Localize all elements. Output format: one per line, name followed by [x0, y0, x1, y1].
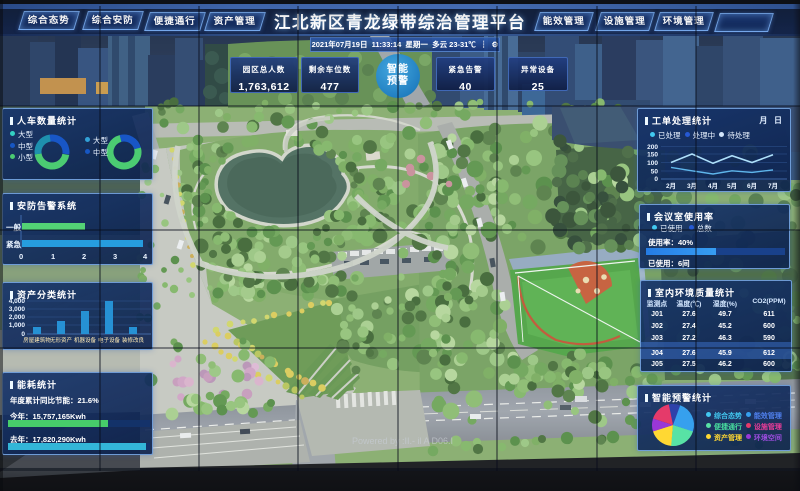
- svg-text:电子设备: 电子设备: [98, 336, 121, 344]
- svg-text:3: 3: [113, 252, 117, 261]
- svg-text:装修改良: 装修改良: [122, 336, 145, 344]
- svg-text:0: 0: [21, 331, 25, 338]
- svg-text:2,000: 2,000: [9, 314, 26, 321]
- svg-text:2: 2: [82, 252, 86, 261]
- svg-text:4月: 4月: [708, 182, 718, 190]
- svg-text:5月: 5月: [727, 182, 737, 190]
- svg-text:200: 200: [647, 144, 658, 151]
- svg-text:房屋建筑物: 房屋建筑物: [23, 336, 51, 344]
- svg-text:100: 100: [647, 160, 658, 167]
- svg-text:7月: 7月: [768, 182, 778, 190]
- svg-text:4: 4: [143, 252, 148, 261]
- svg-text:50: 50: [651, 169, 659, 176]
- svg-text:机器设备: 机器设备: [74, 336, 97, 344]
- svg-text:3,000: 3,000: [9, 306, 26, 313]
- svg-text:0: 0: [654, 176, 658, 183]
- svg-text:2月: 2月: [666, 182, 676, 190]
- svg-text:1: 1: [51, 252, 55, 261]
- svg-text:无形资产: 无形资产: [50, 336, 73, 344]
- svg-text:6月: 6月: [747, 182, 757, 190]
- svg-text:0: 0: [19, 252, 23, 261]
- svg-text:紧急: 紧急: [6, 239, 21, 249]
- svg-text:1,000: 1,000: [9, 322, 26, 329]
- svg-text:150: 150: [647, 152, 658, 159]
- svg-text:4,000: 4,000: [9, 298, 26, 305]
